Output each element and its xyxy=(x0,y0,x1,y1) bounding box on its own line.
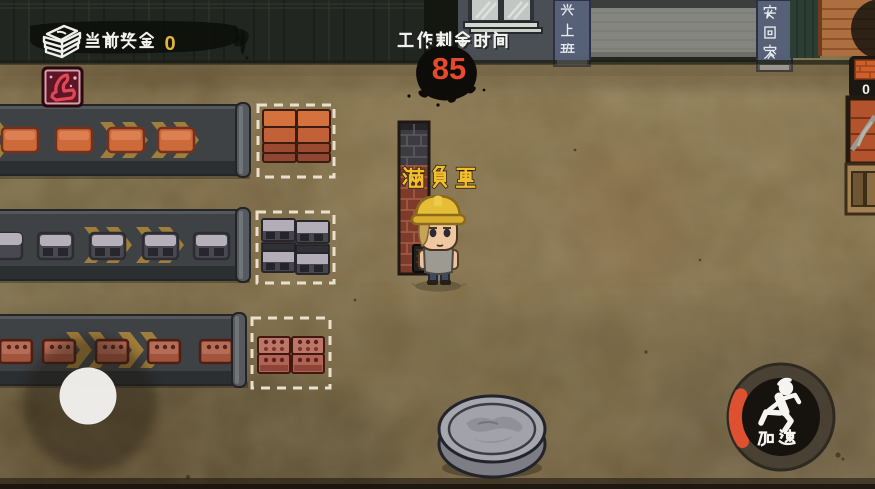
svg-text:0: 0 xyxy=(862,81,870,97)
svg-text:85: 85 xyxy=(432,51,466,86)
svg-text:0: 0 xyxy=(164,33,175,55)
